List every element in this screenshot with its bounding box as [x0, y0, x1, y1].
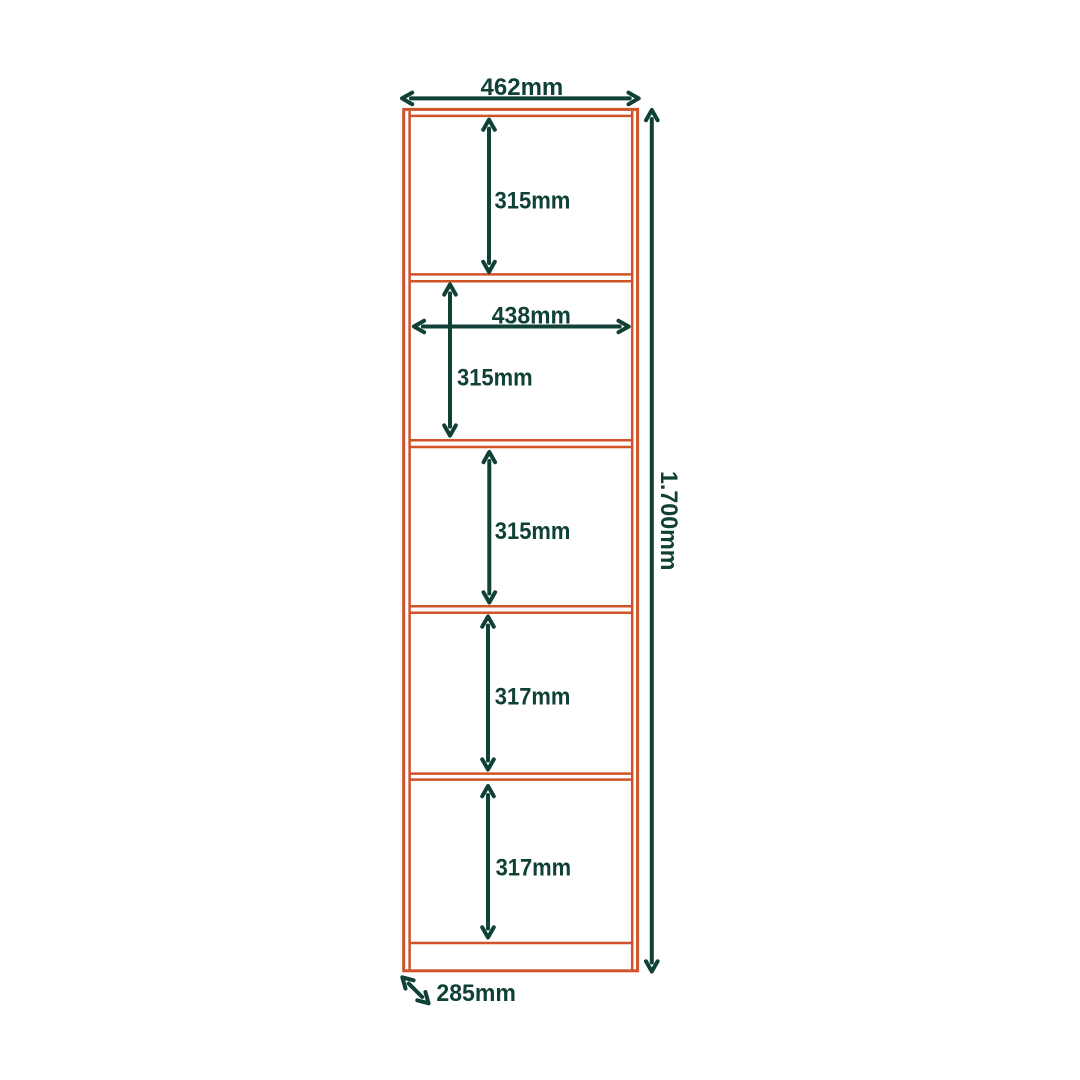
svg-text:317mm: 317mm: [495, 684, 571, 711]
svg-text:315mm: 315mm: [457, 365, 533, 392]
svg-text:317mm: 317mm: [496, 854, 572, 881]
svg-text:285mm: 285mm: [436, 980, 516, 1007]
svg-text:315mm: 315mm: [495, 188, 571, 215]
svg-text:438mm: 438mm: [492, 303, 571, 330]
svg-text:462mm: 462mm: [481, 74, 564, 101]
svg-text:315mm: 315mm: [495, 518, 571, 545]
svg-text:1.700mm: 1.700mm: [655, 471, 682, 570]
